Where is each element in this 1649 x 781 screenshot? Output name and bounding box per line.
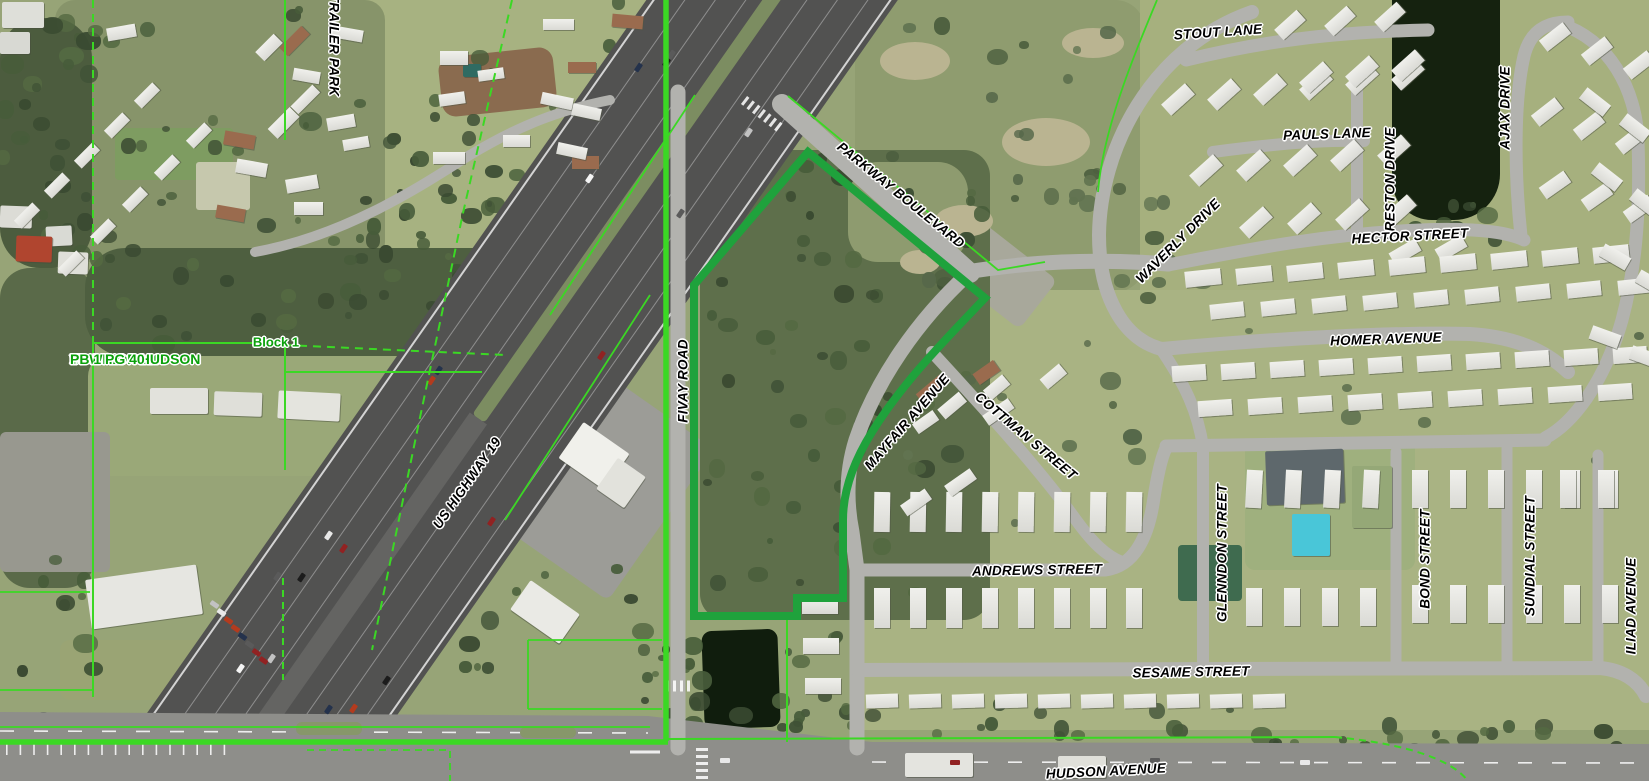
parcel-line [1335,737,1468,781]
parcel-lines-layer [0,0,1649,781]
street-label-bond-street: BOND STREET [1418,509,1433,609]
street-label-trailer-park: TRAILER PARK [327,0,342,96]
block-label: Block 1 [253,336,299,351]
parcel-line [550,95,695,315]
parcel-line [307,750,450,781]
street-label-iliad-avenue: ILIAD AVENUE [1624,558,1639,655]
parcel-survey-annotation-line: PB 1 PG 40 [70,352,145,368]
street-label-fivay-road: FIVAY ROAD [676,339,691,423]
parcel-line [668,737,1335,739]
street-label-sundial-street: SUNDIAL STREET [1523,496,1538,616]
parcel-line [372,0,512,650]
parcel-line [285,345,505,355]
street-label-glenndon-street: GLENNDON STREET [1215,484,1230,622]
parcel-line [1098,0,1157,192]
street-label-pauls-lane: PAULS LANE [1283,125,1371,143]
street-label-sesame-street: SESAME STREET [1132,663,1250,680]
street-label-ajax-drive: AJAX DRIVE [1498,66,1513,150]
parcel-line [505,295,650,520]
aerial-map-viewport[interactable]: TRAILER PARKSTOUT LANEPAULS LANEAJAX DRI… [0,0,1649,781]
street-label-andrews-street: ANDREWS STREET [972,561,1103,578]
street-label-preston-drive: PRESTON DRIVE [1383,127,1398,240]
